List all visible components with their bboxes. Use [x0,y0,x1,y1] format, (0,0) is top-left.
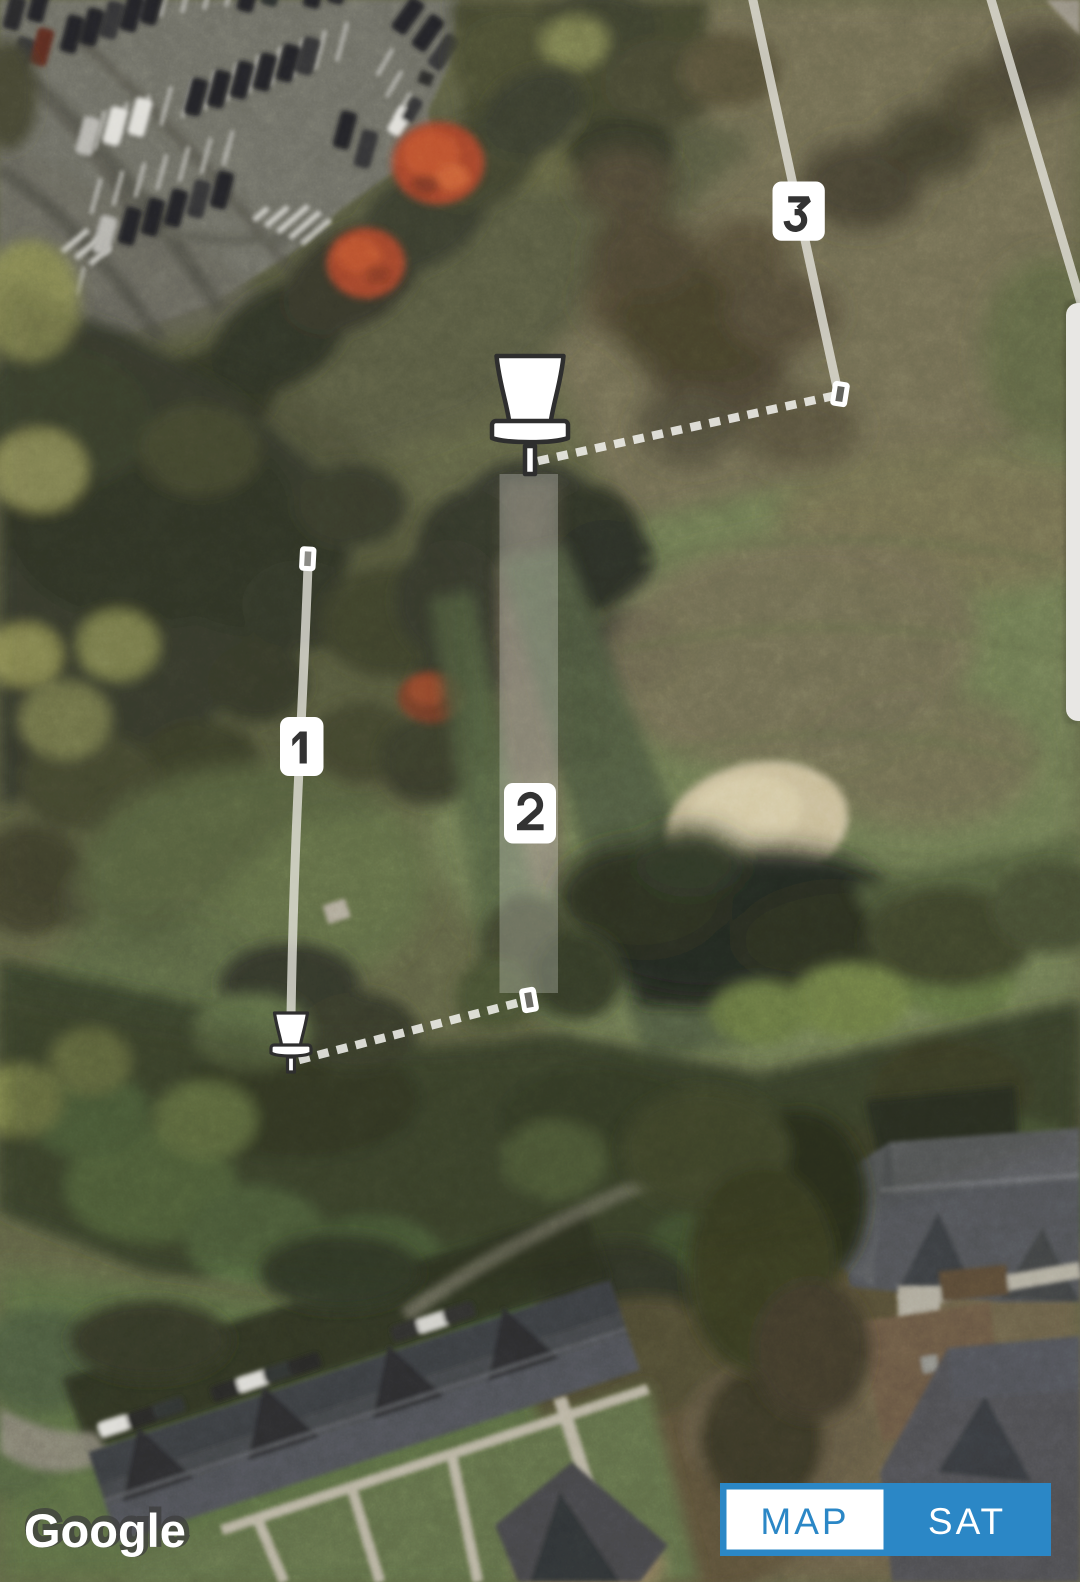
svg-text:Google: Google [24,1504,186,1557]
svg-text:SAT: SAT [928,1501,1006,1542]
svg-text:MAP: MAP [760,1501,849,1542]
